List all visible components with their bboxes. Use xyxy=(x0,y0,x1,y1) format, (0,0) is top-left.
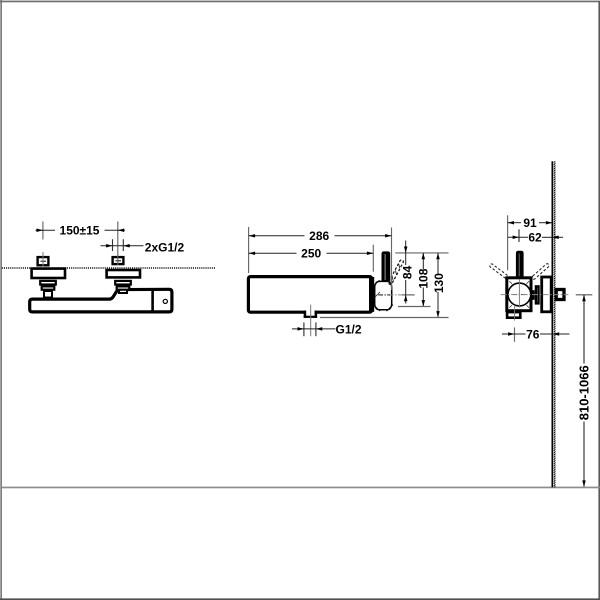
svg-text:91: 91 xyxy=(523,216,537,230)
svg-text:150±15: 150±15 xyxy=(60,224,100,238)
svg-text:84: 84 xyxy=(401,265,415,279)
svg-text:G1/2: G1/2 xyxy=(336,323,362,337)
svg-text:810-1066: 810-1066 xyxy=(577,365,592,420)
svg-text:130: 130 xyxy=(432,273,446,293)
svg-text:2xG1/2: 2xG1/2 xyxy=(145,241,185,255)
svg-text:76: 76 xyxy=(526,327,540,341)
svg-text:108: 108 xyxy=(417,268,431,288)
svg-text:250: 250 xyxy=(301,247,321,261)
svg-text:286: 286 xyxy=(309,229,329,243)
svg-text:62: 62 xyxy=(528,231,542,245)
